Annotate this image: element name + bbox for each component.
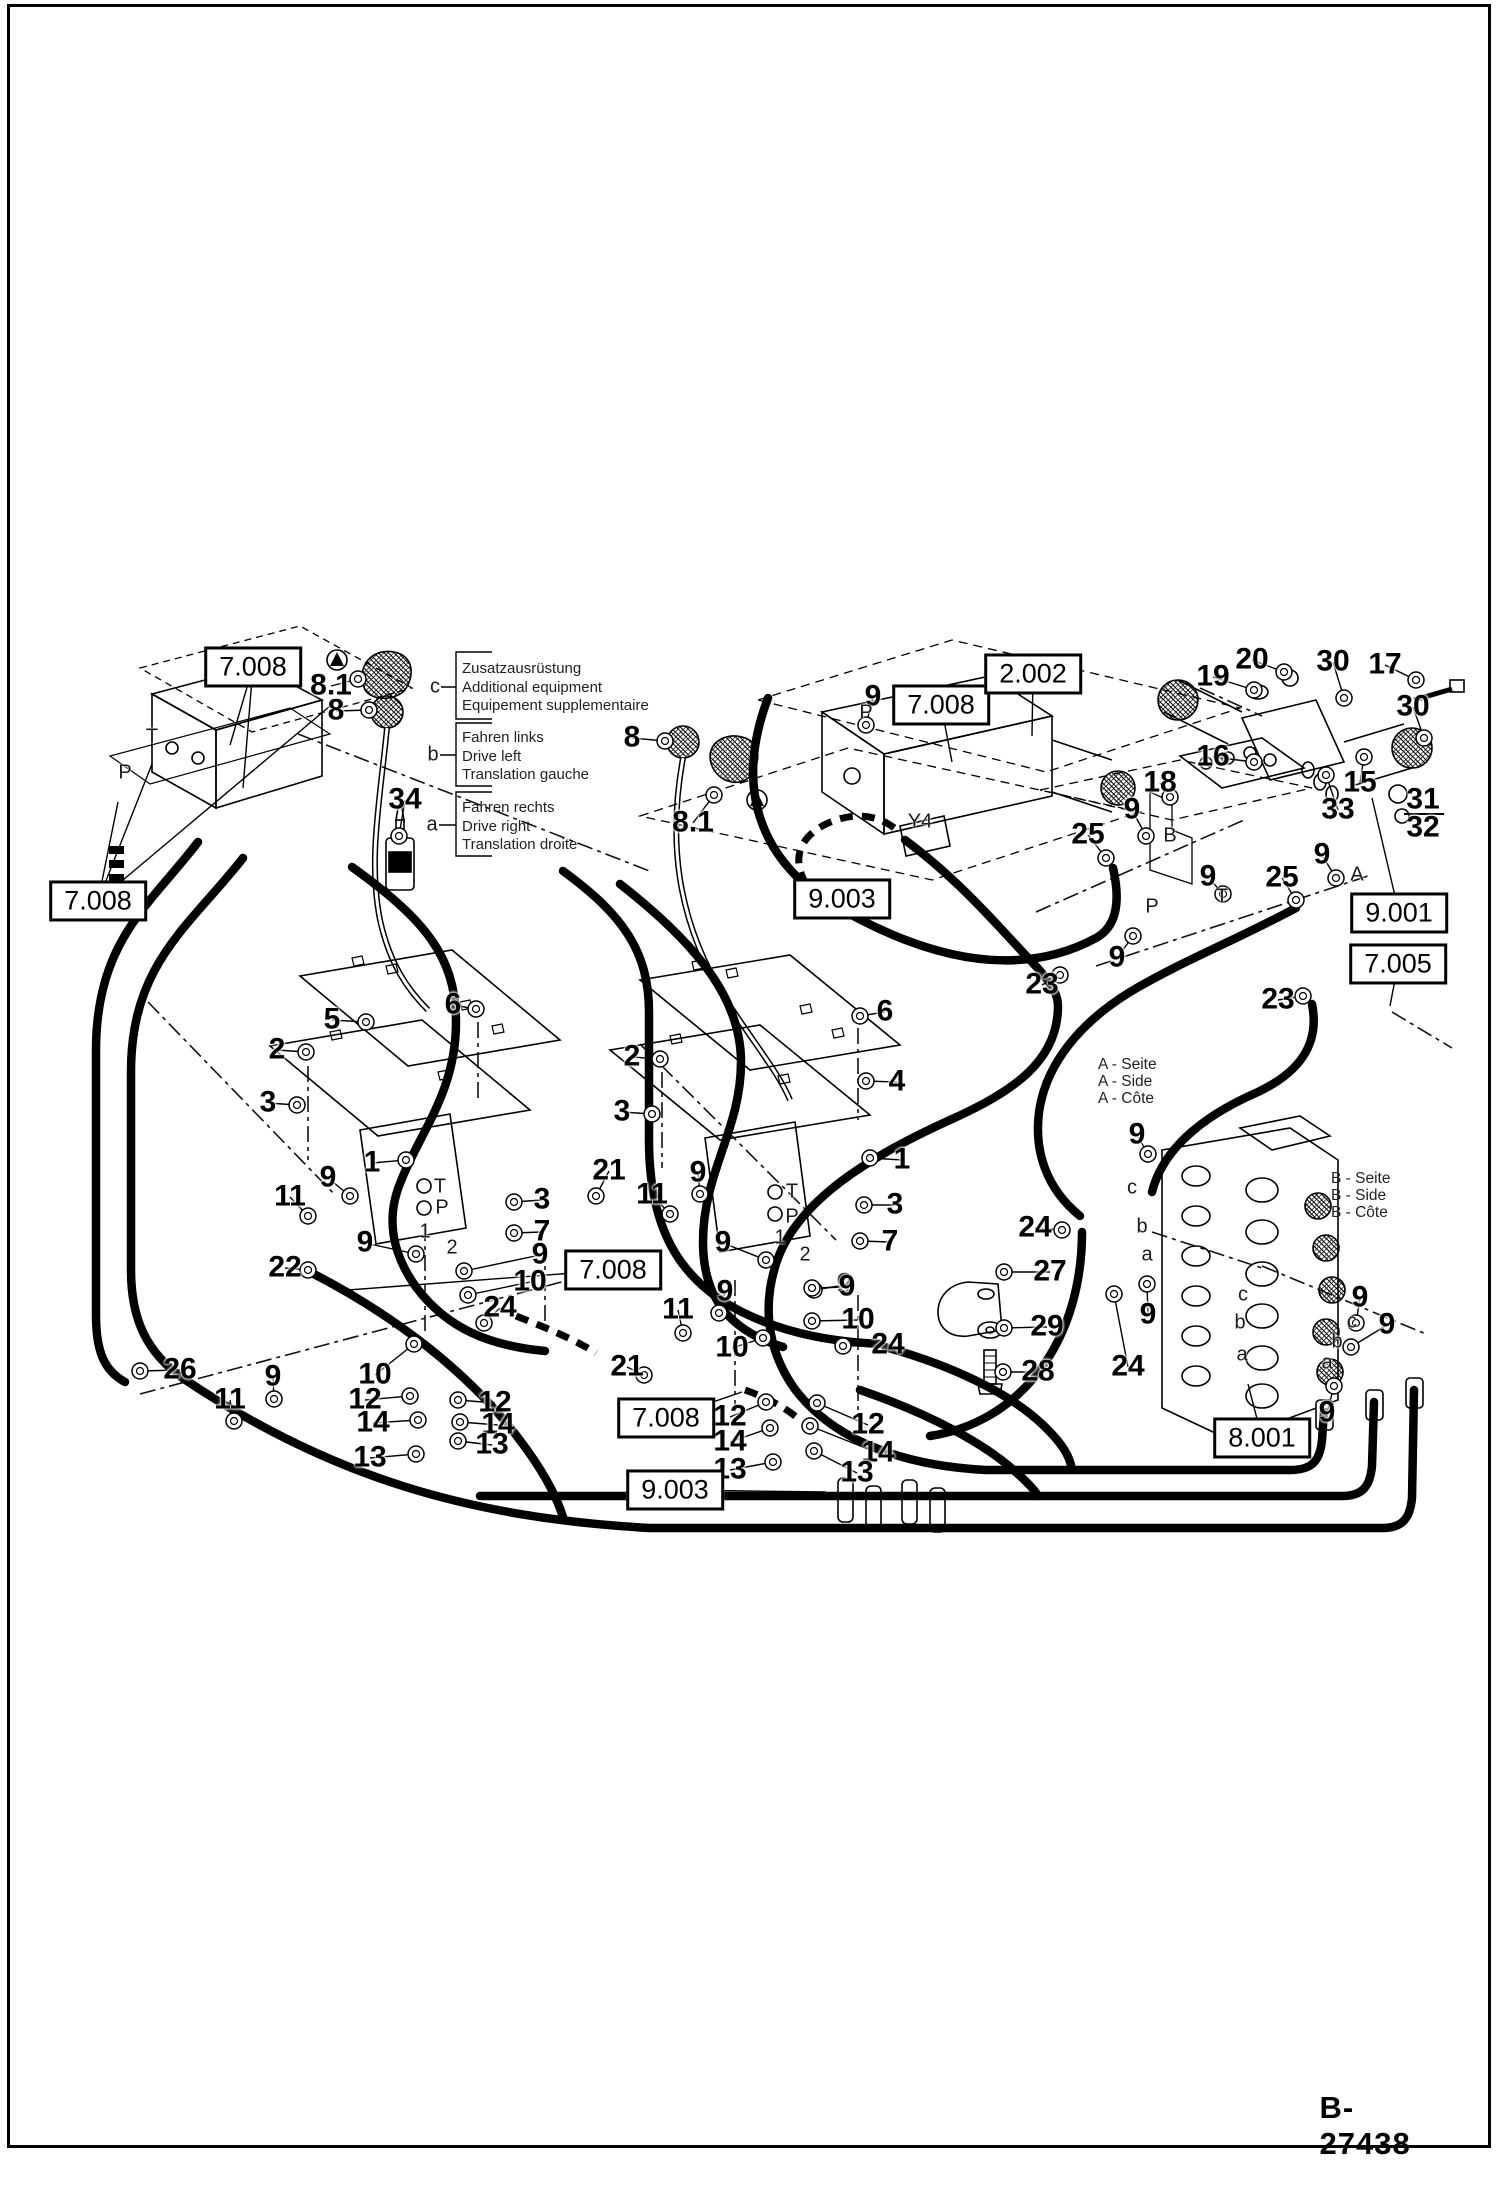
- fitting-glyph: [450, 1433, 466, 1449]
- leader-line: [464, 1255, 540, 1271]
- legend-group-a: Fahren rechts Drive right Translation dr…: [462, 799, 577, 855]
- hydraulic-hose: [1038, 908, 1296, 1216]
- leader-line: [666, 1392, 742, 1418]
- fitting-glyph: [636, 1367, 652, 1383]
- axis-line: [1262, 1266, 1426, 1334]
- fitting-glyph: [996, 1320, 1012, 1336]
- fitting-glyph: [1328, 870, 1344, 886]
- fitting-glyph: [662, 1206, 678, 1222]
- control-valve-block: [1162, 1116, 1345, 1440]
- leader-line: [98, 706, 330, 901]
- fitting-glyph: [765, 1454, 781, 1470]
- axis-line: [1096, 876, 1368, 966]
- legend-group-c: Zusatzausrüstung Additional equipment Eq…: [462, 660, 649, 716]
- legend-letter-a: a: [426, 815, 437, 835]
- solenoid-valve-assembly: [1150, 670, 1464, 884]
- diagram-artwork: [0, 0, 1498, 2193]
- legend-line: Translation droite: [462, 836, 577, 855]
- leader-line: [941, 705, 952, 762]
- fitting-glyph: [1276, 664, 1292, 680]
- fitting-glyph: [456, 1263, 472, 1279]
- fitting-glyph: [342, 1188, 358, 1204]
- legend-line: Zusatzausrüstung: [462, 660, 649, 679]
- fitting-glyph: [132, 1363, 148, 1379]
- fitting-glyph: [1140, 1146, 1156, 1162]
- fitting-glyph: [835, 1338, 851, 1354]
- fitting-glyph: [675, 1325, 691, 1341]
- fitting-glyph: [506, 1225, 522, 1241]
- hydraulic-hose: [1152, 1004, 1314, 1192]
- legend-group-b: Fahren links Drive left Translation gauc…: [462, 729, 589, 785]
- fitting-glyph: [391, 828, 407, 844]
- fitting-glyph: [361, 702, 377, 718]
- legend-line: Fahren links: [462, 729, 589, 748]
- b-side-line: B - Seite: [1331, 1170, 1390, 1187]
- fitting-glyph: [1125, 928, 1141, 944]
- legend-line: Translation gauche: [462, 766, 589, 785]
- fitting-glyph: [862, 1150, 878, 1166]
- fitting-glyph: [266, 1391, 282, 1407]
- fitting-glyph: [1162, 789, 1178, 805]
- fitting-glyph: [1318, 767, 1334, 783]
- legend-letter-b: b: [427, 745, 438, 765]
- fitting-glyph: [692, 1186, 708, 1202]
- fitting-glyph: [1215, 886, 1231, 902]
- fitting-glyph: [1295, 988, 1311, 1004]
- leader-line: [1390, 964, 1398, 1006]
- hydraulic-hose: [352, 867, 545, 1351]
- parts-diagram-page: 8.183488.1925923925923192030173016153318…: [0, 0, 1498, 2193]
- a-side-line: A - Côte: [1098, 1090, 1157, 1107]
- construction-lines: [140, 688, 1452, 1415]
- a-side-line: A - Side: [1098, 1073, 1157, 1090]
- fitting-glyph: [1246, 754, 1262, 770]
- fitting-glyph: [652, 1051, 668, 1067]
- fitting-glyph: [506, 1194, 522, 1210]
- leader-line: [1114, 1294, 1128, 1367]
- b-side-note: B - Seite B - Side B - Côte: [1331, 1170, 1390, 1221]
- fitting-glyph: [1326, 1378, 1342, 1394]
- b-side-line: B - Côte: [1331, 1204, 1390, 1221]
- fitting-glyph: [460, 1287, 476, 1303]
- legend-letter-c: c: [430, 677, 440, 697]
- fitting-glyph: [1138, 828, 1154, 844]
- axis-line: [140, 1268, 614, 1394]
- fitting-glyph: [858, 1073, 874, 1089]
- b-side-line: B - Side: [1331, 1187, 1390, 1204]
- fitting-glyph: [804, 1313, 820, 1329]
- fitting-glyph: [996, 1264, 1012, 1280]
- leader-lines: [98, 660, 1424, 1492]
- fitting-glyph: [1416, 730, 1432, 746]
- fitting-glyph: [1052, 967, 1068, 983]
- drawing-number: B-27438: [1320, 2090, 1439, 2162]
- hydraulic-hose: [860, 1390, 1038, 1496]
- legend-line: Additional equipment: [462, 679, 649, 698]
- fitting-glyph: [711, 1305, 727, 1321]
- a-side-note: A - Seite A - Side A - Côte: [1098, 1056, 1157, 1107]
- fitting-glyph: [762, 1420, 778, 1436]
- legend-line: Drive left: [462, 748, 589, 767]
- fitting-glyph: [1408, 672, 1424, 688]
- legend-line: Equipement supplementaire: [462, 697, 649, 716]
- fitting-glyph: [1098, 850, 1114, 866]
- fitting-glyph: [1139, 1276, 1155, 1292]
- pilot-hose-dashed: [799, 816, 897, 884]
- legend-line: Fahren rechts: [462, 799, 577, 818]
- fitting-glyph: [358, 1014, 374, 1030]
- fitting-glyph: [758, 1252, 774, 1268]
- fitting-glyph: [802, 1418, 818, 1434]
- fitting-glyph: [758, 1394, 774, 1410]
- fitting-glyph: [706, 787, 722, 803]
- fitting-glyph: [468, 1001, 484, 1017]
- fitting-glyph: [806, 1443, 822, 1459]
- fitting-glyph: [1246, 682, 1262, 698]
- fitting-glyph: [644, 1106, 660, 1122]
- fitting-glyph: [398, 1152, 414, 1168]
- fitting-glyph: [809, 1395, 825, 1411]
- fitting-glyph: [450, 1392, 466, 1408]
- fitting-glyph: [452, 1414, 468, 1430]
- leader-line: [675, 1490, 826, 1492]
- fitting-glyph: [226, 1413, 242, 1429]
- fitting-glyph: [804, 1280, 820, 1296]
- fitting-glyph: [408, 1246, 424, 1262]
- fitting-glyph: [300, 1262, 316, 1278]
- leader-line: [98, 764, 152, 901]
- grease-tube: [386, 808, 414, 890]
- hydraulic-hose: [563, 871, 880, 1344]
- leader-line: [348, 1270, 613, 1290]
- fitting-glyph: [858, 717, 874, 733]
- fitting-glyph: [1106, 1286, 1122, 1302]
- fitting-glyph: [300, 1208, 316, 1224]
- fitting-glyph: [856, 1197, 872, 1213]
- fitting-glyph: [402, 1388, 418, 1404]
- legend-line: Drive right: [462, 818, 577, 837]
- fitting-glyph: [406, 1336, 422, 1352]
- fitting-glyph: [995, 1364, 1011, 1380]
- fitting-glyph: [1356, 749, 1372, 765]
- fitting-glyph: [1343, 1339, 1359, 1355]
- fitting-glyph: [298, 1044, 314, 1060]
- fitting-glyph: [410, 1412, 426, 1428]
- fitting-glyph: [476, 1315, 492, 1331]
- fitting-glyph: [1348, 1315, 1364, 1331]
- fitting-glyph: [1336, 690, 1352, 706]
- a-side-line: A - Seite: [1098, 1056, 1157, 1073]
- fitting-glyph: [350, 671, 366, 687]
- fitting-glyph: [588, 1188, 604, 1204]
- fitting-glyph: [755, 1330, 771, 1346]
- hydraulic-hose: [753, 698, 1116, 960]
- fitting-glyph: [1288, 892, 1304, 908]
- fitting-glyph: [1054, 1222, 1070, 1238]
- fitting-glyph: [657, 733, 673, 749]
- fitting-glyph: [289, 1097, 305, 1113]
- fitting-glyph: [852, 1008, 868, 1024]
- fitting-glyph: [408, 1446, 424, 1462]
- leader-line: [1032, 674, 1033, 736]
- axis-line: [1392, 1012, 1452, 1048]
- fitting-glyph: [852, 1233, 868, 1249]
